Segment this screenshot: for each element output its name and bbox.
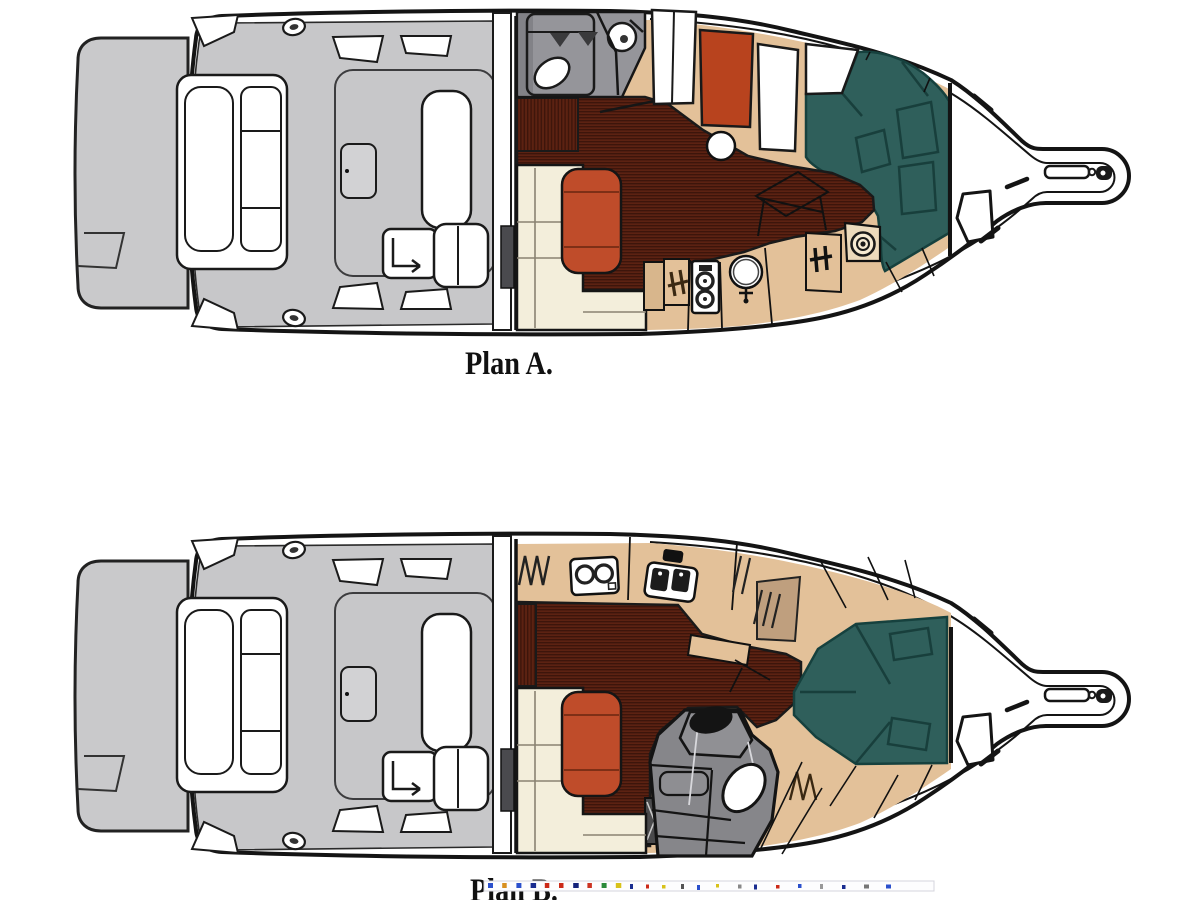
svg-text:Plan A.: Plan A. xyxy=(465,346,553,382)
